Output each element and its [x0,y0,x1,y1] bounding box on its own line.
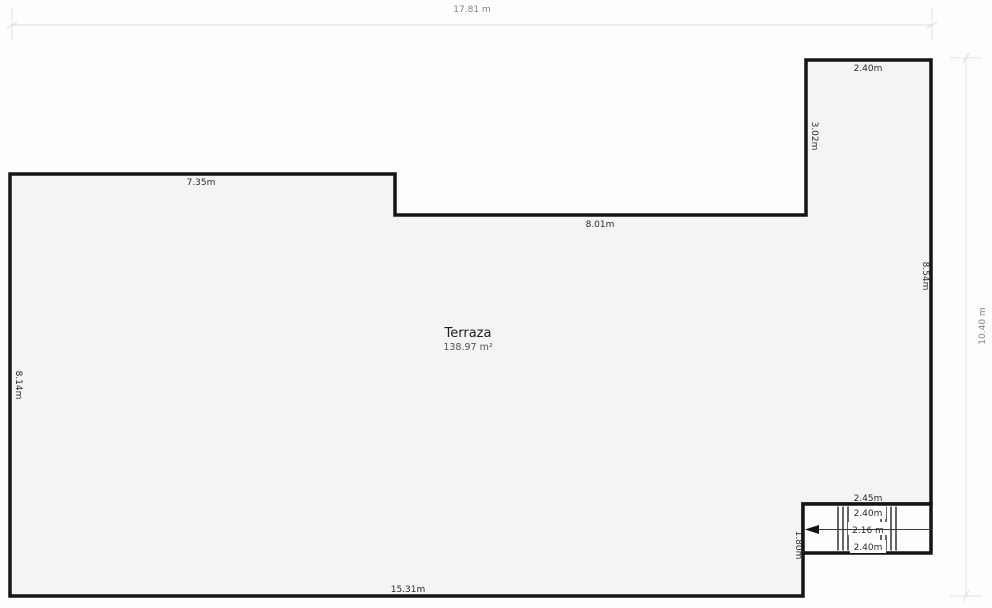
floorplan-canvas: 17.81 m 10.40 m 2. [0,0,992,608]
floorplan-drawing: 17.81 m 10.40 m 2. [0,0,992,608]
room-name-label: Terraza [444,326,492,341]
stairs-walk-line-label: 2.16 m [852,526,884,536]
stairs-height-label: 1.80m [793,531,803,560]
overall-width-label: 17.81 m [453,5,490,15]
stairs-lower-run-label: 2.40m [854,543,883,553]
wall-top-left-label: 7.35m [187,178,216,188]
room-area-label: 138.97 m² [443,342,493,353]
wall-left-label: 8.14m [13,371,23,400]
wall-right-label: 8.54m [920,262,930,291]
overall-height-label: 10.40 m [978,307,988,344]
wall-annex-top-label: 2.40m [854,64,883,74]
wall-bottom-label: 15.31m [391,585,426,595]
stairs-upper-run-label: 2.40m [854,509,883,519]
wall-middle-label: 8.01m [586,220,615,230]
stairs-width-label: 2.45m [854,494,883,504]
wall-annex-left-label: 3.02m [809,122,819,151]
